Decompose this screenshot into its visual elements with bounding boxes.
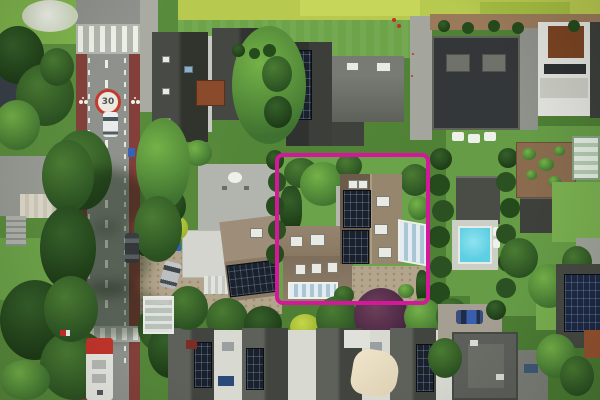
roof-extension xyxy=(332,122,364,146)
bicycle-symbol xyxy=(131,100,135,104)
blue-car xyxy=(456,310,483,324)
alley xyxy=(520,28,538,130)
bus-roof-hatch xyxy=(92,374,106,383)
roof-skylight xyxy=(346,62,359,71)
dark-parked-car xyxy=(125,233,139,263)
bus-stop-shelter xyxy=(143,296,174,334)
roof-skylight xyxy=(376,62,391,72)
blue-solar-panel xyxy=(218,376,234,386)
garden-bush xyxy=(522,148,536,160)
roof-ridge-band xyxy=(468,344,504,388)
tree xyxy=(44,276,98,342)
roof-skylight xyxy=(162,56,170,63)
tree xyxy=(264,96,292,128)
hedge-row xyxy=(498,148,518,168)
roof-skylight xyxy=(250,228,263,238)
tree xyxy=(428,338,462,378)
zebra-crossing xyxy=(78,26,138,52)
roof-hatch xyxy=(482,54,506,72)
roof-terrace xyxy=(540,78,588,98)
tree xyxy=(560,356,594,396)
bus-roof-unit xyxy=(97,390,103,395)
lawn xyxy=(552,182,600,242)
tree xyxy=(168,286,208,330)
terrace-link-roof xyxy=(214,330,242,400)
tree xyxy=(0,100,40,150)
road-sign xyxy=(60,330,70,336)
bush xyxy=(486,300,506,320)
copper-roof-section xyxy=(548,26,584,58)
orange-shed xyxy=(584,330,600,358)
garden-chair xyxy=(222,186,227,190)
rust-flat-roof xyxy=(196,80,225,106)
waste-bin xyxy=(128,148,135,157)
garden-table xyxy=(228,172,242,183)
speed-limit-text: 30 xyxy=(102,98,115,107)
hedge-row xyxy=(430,148,452,170)
flat-roof-house xyxy=(432,36,520,130)
tree xyxy=(42,140,94,212)
sun-loungers xyxy=(452,132,464,141)
hedge xyxy=(438,20,450,32)
garden-bush xyxy=(538,158,554,171)
bus xyxy=(86,338,113,400)
greenhouse xyxy=(572,136,600,180)
garden-bush xyxy=(554,146,565,156)
terrace-link-roof xyxy=(288,330,316,400)
roof-hatch xyxy=(222,342,234,351)
terraced-houses-row xyxy=(168,328,470,400)
garden-canopy-roof xyxy=(456,176,500,224)
hedge-cone xyxy=(232,44,245,57)
house-roof xyxy=(590,22,600,118)
property-highlight-rectangle xyxy=(275,153,430,305)
roof-skylight xyxy=(162,88,170,95)
white-car xyxy=(103,112,118,137)
flat-roof xyxy=(344,330,370,348)
waterway-patch xyxy=(300,0,420,16)
garden-chair xyxy=(244,186,249,190)
bus-roof-hatch xyxy=(92,360,106,369)
garden-bush xyxy=(526,170,537,180)
flowering-bush xyxy=(22,0,78,32)
bicycle-symbol xyxy=(79,100,83,104)
red-chimney xyxy=(186,340,197,349)
red-flowers xyxy=(392,18,396,22)
swimming-pool xyxy=(458,226,492,264)
roof-hatch xyxy=(446,54,470,72)
tree xyxy=(262,56,292,92)
roof-skylight xyxy=(184,66,193,73)
tree xyxy=(134,196,182,262)
pool-lounger xyxy=(493,227,500,236)
hip-roof-wing xyxy=(332,56,404,122)
window-strip xyxy=(544,64,586,74)
rooftop-unit xyxy=(496,374,504,380)
footpath xyxy=(410,16,432,140)
tree xyxy=(40,48,74,86)
rooftop-unit xyxy=(470,340,478,346)
large-solar-array xyxy=(564,274,600,332)
tree xyxy=(0,360,50,400)
stairs xyxy=(6,216,26,246)
aerial-photo-stage: 30 xyxy=(0,0,600,400)
shed-skylight xyxy=(524,364,538,373)
solar-array xyxy=(246,348,264,390)
